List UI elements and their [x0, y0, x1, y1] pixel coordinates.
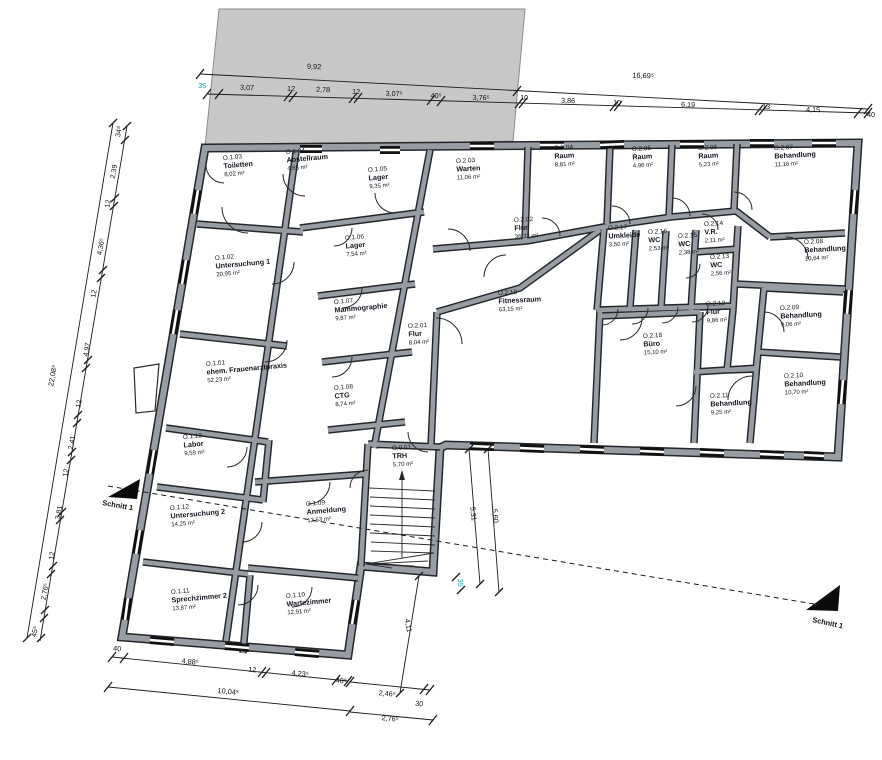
room-name: Flur [706, 307, 720, 317]
bay-window [134, 364, 159, 413]
floor-plan-canvas: Schnitt 1 Schnitt 1 O.0.01TRH5,70 m² O.1… [0, 0, 882, 760]
dim-segment: 2,78 [316, 85, 330, 94]
dim-segment: 4,97 [81, 342, 92, 357]
dim-total-left: 22,08⁵ [46, 364, 59, 387]
dim-segment: 10 [613, 98, 621, 107]
room-name: V.R. [704, 227, 718, 237]
room-label: O.1.13Labor9,59 m² [183, 432, 205, 457]
dim-segment: 10 [520, 93, 528, 102]
dim-segment: 12 [88, 289, 98, 298]
room-name: Warten [456, 163, 481, 173]
dim-segment: 4,36⁵ [95, 237, 107, 255]
dim-segment: 40⁵ [335, 676, 347, 686]
room-area: 11,16 m² [775, 161, 799, 168]
room-area: 10,64 m² [805, 255, 829, 262]
room-area: 11,06 m² [457, 174, 481, 181]
room-name: WC [678, 239, 690, 249]
room-area: 4,96 m² [633, 162, 654, 169]
dim-segment: 34⁸ [113, 125, 124, 137]
room-name: Flur [408, 329, 422, 339]
dim-segment: 3,86 [561, 96, 575, 105]
dim-total-bottom: 10,04⁵ [217, 686, 239, 697]
room-area: 2,38 m² [679, 249, 700, 256]
room-area: 9,86 m² [707, 317, 728, 324]
room-area: 2,11 m² [705, 237, 725, 244]
room-name: Raum [698, 150, 718, 160]
section-label-right: Schnitt 1 [812, 615, 844, 630]
dim-segment: 45⁵ [29, 625, 40, 637]
room-label: O.1.06Lager7,54 m² [345, 233, 367, 258]
room-area: 8,04 m² [409, 339, 430, 346]
room-name: Büro [643, 339, 661, 349]
room-name: WC [710, 260, 722, 270]
dim-segment: 12 [287, 84, 295, 93]
dim-segment: 3,07 [240, 83, 254, 92]
room-name: Lager [345, 240, 365, 251]
dim-segment: 4,88⁵ [181, 656, 199, 667]
room-area: 5,23 m² [699, 161, 720, 168]
room-label: O.2.04Raum8,81 m² [554, 144, 576, 169]
dim-segment: 12 [102, 199, 112, 208]
dim-segment: 5,60 [490, 508, 500, 523]
room-area: 8,81 m² [555, 161, 576, 168]
room-label: O.2.06Raum5,23 m² [698, 144, 720, 169]
dim-segment: 2,76⁵ [39, 582, 51, 600]
room-area: 2,53 m² [649, 245, 670, 252]
room-area: 5,70 m² [393, 461, 414, 468]
dim-segment: 12 [248, 665, 257, 675]
room-area: 3,50 m² [609, 241, 630, 248]
section-triangle-right [806, 585, 840, 611]
room-area: 10,70 m² [785, 389, 809, 396]
dim-segment: 4,23⁵ [291, 668, 309, 679]
dim-segment: 40⁵ [430, 91, 441, 100]
dim-total-top-right: 16,69⁵ [632, 71, 654, 81]
room-name: Labor [183, 439, 204, 450]
room-name: Lager [368, 172, 388, 183]
dim-total-top-left: 9,92 [307, 62, 322, 71]
dim-segment: 2,46⁵ [378, 688, 396, 699]
dim-segment: 2,39 [108, 164, 119, 179]
dim-segment: 12 [352, 87, 360, 96]
room-name: WC [648, 235, 660, 245]
floor-plan-drawing: Schnitt 1 Schnitt 1 O.0.01TRH5,70 m² O.1… [0, 0, 882, 760]
dim-segment: 4,11 [403, 618, 414, 633]
dim-segment: 5,31 [468, 506, 478, 521]
room-label: O.2.05Raum4,96 m² [632, 145, 654, 170]
room-label: O.1.05Lager9,35 m² [368, 165, 390, 190]
room-area: 15,10 m² [644, 349, 668, 356]
dim-segment: 3,76⁵ [472, 93, 489, 103]
dim-segment: 12 [46, 551, 56, 560]
dim-segment: 30 [415, 699, 424, 709]
dim-segment: 6,19 [681, 100, 695, 109]
section-triangle-left [108, 479, 140, 499]
section-label-left: Schnitt 1 [102, 498, 134, 512]
dim-segment: 35 [456, 578, 466, 587]
room-name: Raum [632, 151, 652, 161]
room-name: Raum [554, 150, 574, 160]
room-area: 2,56 m² [711, 270, 732, 277]
room-name: Flur [514, 223, 528, 233]
dim-segment: 12 [60, 468, 70, 477]
room-area: 9,06 m² [781, 321, 802, 328]
room-name: TRH [392, 451, 407, 461]
dim-segment: 2,76⁵ [381, 713, 399, 724]
dim-segment: 40 [867, 110, 875, 119]
dim-segment: 13 [762, 102, 770, 111]
room-name: CTG [334, 390, 350, 400]
room-area: 63,15 m² [499, 306, 523, 313]
dim-segment: 35 [198, 81, 206, 90]
room-area: 9,25 m² [711, 409, 732, 416]
neighbor-building-block [205, 9, 525, 147]
room-area: 36,32 m² [515, 233, 539, 240]
dim-segment: 12 [73, 399, 83, 408]
dim-segment: 3,07⁵ [385, 89, 402, 99]
room-name: Umkleide [608, 230, 640, 241]
dim-segment: 40 [113, 644, 122, 654]
dim-segment: 4,15 [806, 105, 820, 114]
